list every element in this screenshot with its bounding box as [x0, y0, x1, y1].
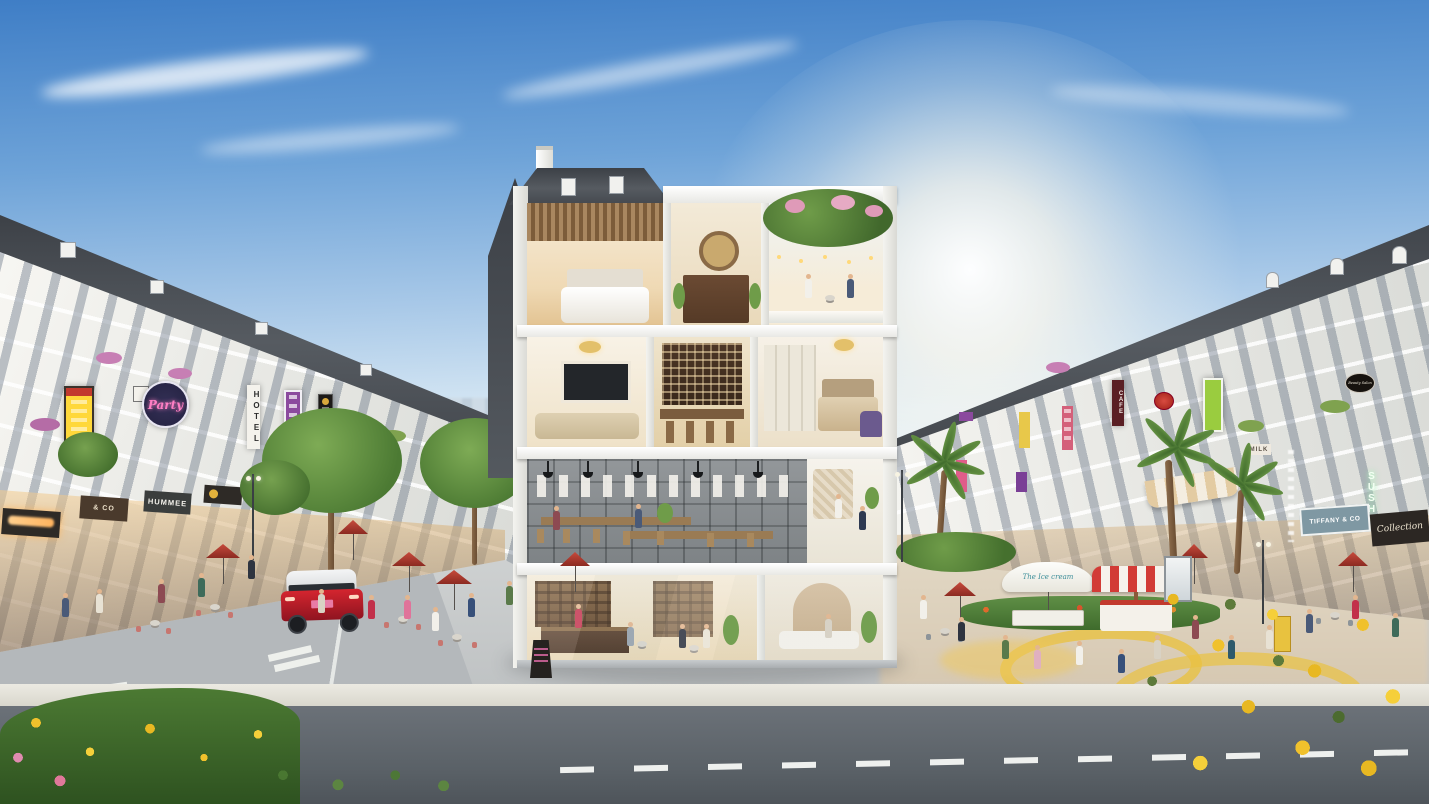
roof-dormer — [609, 176, 624, 194]
outdoor-table — [452, 634, 462, 640]
palm-crown — [912, 440, 972, 480]
palm-crown — [1140, 424, 1206, 468]
shrub-bed — [896, 532, 1016, 572]
terrace-person — [847, 279, 854, 298]
wine-bar-dining — [654, 337, 750, 447]
community-table — [623, 531, 773, 539]
sign-logo-dot — [209, 489, 219, 499]
pedestrian — [1002, 640, 1009, 659]
feature-wall — [813, 469, 853, 519]
wine-rack-wall — [662, 343, 742, 405]
purple-banner — [1016, 472, 1027, 492]
beauty-salon-text: Beauty Salon — [1348, 381, 1371, 385]
pedestrian — [404, 600, 411, 619]
terrace-table — [825, 295, 835, 301]
bar-counter — [660, 409, 744, 419]
taillight — [285, 597, 295, 601]
palm-crown — [1210, 462, 1270, 502]
red-umbrella — [338, 520, 368, 560]
mullion — [750, 337, 758, 447]
pedestrian — [1076, 646, 1083, 665]
ice-cream-umbrella: The Ice cream — [1002, 562, 1094, 592]
yellow-ground-paint — [940, 640, 1080, 680]
street-lamp — [901, 470, 903, 562]
foreground-leaves — [250, 756, 470, 804]
standing-person — [835, 499, 842, 518]
cafe-chairs — [537, 529, 544, 543]
pedestrian — [468, 598, 475, 617]
arched-dormer — [1330, 258, 1344, 275]
master-bedroom — [758, 337, 883, 447]
pedestrian — [920, 600, 927, 619]
terrace-person — [805, 279, 812, 298]
party-sign-text: Party — [148, 398, 183, 412]
balcony-plants — [1238, 420, 1264, 432]
outdoor-table — [940, 628, 950, 634]
neon-letter-strip — [1288, 450, 1294, 542]
plant — [673, 283, 685, 309]
roof-dormer — [150, 280, 164, 294]
balcony-flowers — [96, 352, 122, 364]
person — [635, 509, 642, 528]
pink-blooms — [865, 205, 883, 217]
stand-counter — [1012, 610, 1084, 626]
pedestrian — [198, 578, 205, 597]
building-base — [517, 660, 897, 668]
pedestrian — [1034, 650, 1041, 669]
balcony-flowers — [1046, 362, 1070, 373]
bar-stools — [666, 421, 674, 443]
plant — [657, 503, 673, 523]
left-pilaster — [513, 186, 528, 668]
sofa — [535, 413, 639, 439]
taillight — [349, 595, 359, 599]
wardrobe — [764, 345, 816, 431]
mullion — [646, 337, 654, 447]
chandelier — [834, 339, 854, 351]
altar-cabinet — [683, 275, 749, 323]
rooftop-terrace — [769, 203, 883, 325]
ice-cream-stand: The Ice cream — [1002, 562, 1094, 626]
plant — [865, 487, 879, 509]
mullion — [663, 203, 671, 325]
roof-dormer — [255, 322, 268, 335]
tree-canopy — [58, 432, 118, 477]
purple-armchair — [860, 411, 882, 437]
collection-sign: Collection — [1370, 510, 1429, 547]
pedestrian — [318, 594, 325, 613]
party-sign: Party — [142, 381, 189, 428]
and-co-sign: & CO — [79, 495, 128, 521]
bed — [561, 287, 649, 323]
plant — [749, 283, 761, 309]
glowing-script — [8, 515, 55, 527]
ice-cream-umbrella-text: The Ice cream — [1023, 573, 1074, 581]
yellow-banner — [1019, 412, 1030, 448]
beauty-salon-sign: Beauty Salon — [1345, 373, 1375, 393]
street-lamp — [252, 474, 254, 560]
standing-person — [859, 511, 866, 530]
red-umbrella — [392, 552, 426, 592]
roof-dormer — [561, 178, 576, 196]
pedestrian — [368, 600, 375, 619]
pedestrian — [958, 622, 965, 641]
banner-glyphs — [1064, 409, 1071, 445]
arched-dormer — [1392, 246, 1407, 264]
sign-emblem — [322, 398, 329, 405]
balcony-plants — [1320, 400, 1350, 413]
bakery-sign — [203, 485, 242, 506]
top-floor-bedroom — [527, 203, 663, 325]
glass-railing — [769, 311, 883, 323]
roof-dormer — [60, 242, 76, 258]
center-cutaway-building — [513, 168, 897, 668]
wall-medallion — [699, 231, 739, 271]
coworking-cafe — [527, 459, 807, 563]
pink-banner — [1062, 406, 1073, 450]
person — [553, 511, 560, 530]
red-umbrella — [206, 544, 240, 584]
chandelier — [579, 341, 601, 353]
pink-blooms — [785, 199, 805, 213]
center-mansard-roof — [509, 168, 672, 205]
floor-slab — [517, 447, 897, 459]
arched-dormer — [1266, 272, 1279, 288]
green-lightbox-sign — [1203, 378, 1223, 432]
red-umbrella — [560, 552, 590, 592]
chalk-text — [534, 648, 548, 664]
red-umbrella — [436, 570, 472, 610]
hummee-sign: HUMMEE — [143, 490, 191, 514]
outdoor-table — [210, 604, 220, 610]
pink-blooms — [831, 195, 855, 210]
pedestrian — [62, 598, 69, 617]
balcony-flowers — [168, 368, 192, 379]
altar-room — [671, 203, 761, 325]
pedestrian — [1118, 654, 1125, 673]
red-umbrella — [944, 582, 976, 622]
roof-dormer — [360, 364, 372, 376]
right-pilaster — [883, 186, 897, 668]
balcony-flowers — [30, 418, 60, 431]
golden-shower-flowers — [1128, 548, 1429, 804]
sign-top-band — [66, 388, 92, 396]
a-frame-chalkboard — [530, 640, 552, 678]
floor-slab — [517, 325, 897, 337]
hotel-sign: HOTEL — [247, 385, 260, 449]
lit-storefront-sign — [1, 508, 61, 538]
tv-screen — [561, 361, 631, 403]
outdoor-table — [150, 620, 160, 626]
living-room — [527, 337, 646, 447]
purple-chip-sign — [959, 412, 973, 421]
slatted-wood-ceiling — [527, 203, 663, 241]
pergola-flower-canopy — [763, 189, 893, 247]
round-red-badge-sign — [1154, 392, 1174, 410]
string-lights — [777, 255, 781, 259]
coworking-lounge — [807, 459, 883, 563]
tree-canopy — [240, 460, 310, 515]
poster-wall — [537, 475, 797, 497]
pedestrian — [248, 560, 255, 579]
pedestrian — [506, 586, 513, 605]
tiffany-sign: TIFFANY & CO — [1299, 504, 1371, 537]
streetscape-render: Party HOTEL & CO HUMMEE CAFE Beauty Salo… — [0, 0, 1429, 804]
pedestrian — [432, 612, 439, 631]
pedestrian — [158, 584, 165, 603]
cafe-sign: CAFE — [1112, 380, 1124, 426]
pedestrian — [96, 594, 103, 613]
